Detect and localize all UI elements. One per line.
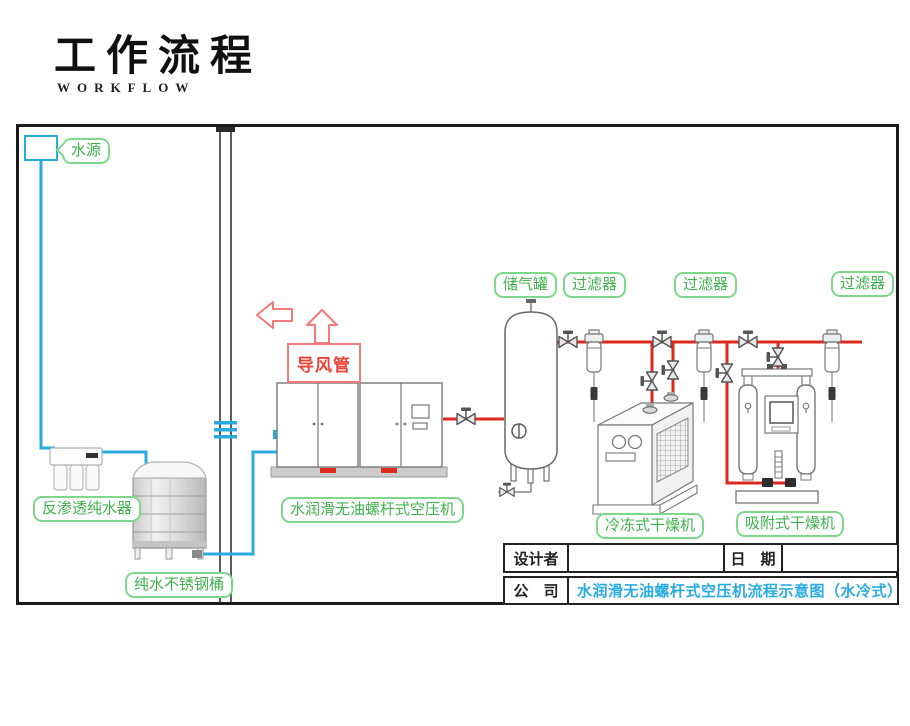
valve-icon <box>662 361 679 379</box>
date-label: 日 期 <box>725 545 783 571</box>
refrigerated-dryer-icon <box>593 392 697 514</box>
label-compressor: 水润滑无油螺杆式空压机 <box>281 497 464 523</box>
flow-diagram-canvas <box>0 0 910 726</box>
label-filter-1: 过滤器 <box>563 272 626 298</box>
air-duct-box: 导风管 <box>287 343 361 383</box>
valve-icon <box>767 348 784 366</box>
label-refrigerated-dryer: 冷冻式干燥机 <box>596 513 704 539</box>
drawing-title: 水润滑无油螺杆式空压机流程示意图（水冷式） <box>569 578 897 603</box>
compressor-icon <box>271 383 447 477</box>
valve-icon <box>653 331 671 348</box>
valve-icon <box>559 331 577 348</box>
company-label: 公 司 <box>505 578 569 603</box>
label-ro-purifier: 反渗透纯水器 <box>33 496 141 522</box>
air-duct-up-arrow-icon <box>307 310 337 343</box>
designer-label: 设计者 <box>505 545 569 571</box>
label-filter-3: 过滤器 <box>831 271 894 297</box>
valve-icon <box>500 483 514 497</box>
filter-icon <box>823 330 841 422</box>
label-air-tank: 储气罐 <box>494 272 557 298</box>
ro-purifier-icon <box>50 448 102 490</box>
page: 工作流程 WORKFLOW <box>0 0 910 726</box>
date-value <box>783 545 897 571</box>
valve-icon <box>457 408 475 425</box>
valve-icon <box>739 331 757 348</box>
valve-icon <box>716 364 733 382</box>
title-block-row-1: 设计者 日 期 <box>503 543 899 573</box>
designer-value <box>569 545 725 571</box>
air-tank-icon <box>498 299 557 492</box>
air-duct-left-arrow-icon <box>257 302 292 328</box>
label-filter-2: 过滤器 <box>674 272 737 298</box>
label-steel-barrel: 纯水不锈钢桶 <box>125 572 233 598</box>
filter-icon <box>695 330 713 422</box>
partition-wall <box>216 127 235 602</box>
label-adsorption-dryer: 吸附式干燥机 <box>736 511 844 537</box>
filter-icon <box>585 330 603 422</box>
water-source-icon <box>25 136 57 160</box>
steel-barrel-icon <box>133 462 206 559</box>
wall-pipe-crossing-icon <box>214 421 278 439</box>
valve-icon <box>641 372 658 390</box>
title-block-row-2: 公 司 水润滑无油螺杆式空压机流程示意图（水冷式） <box>503 576 899 605</box>
label-water-source: 水源 <box>62 138 110 164</box>
